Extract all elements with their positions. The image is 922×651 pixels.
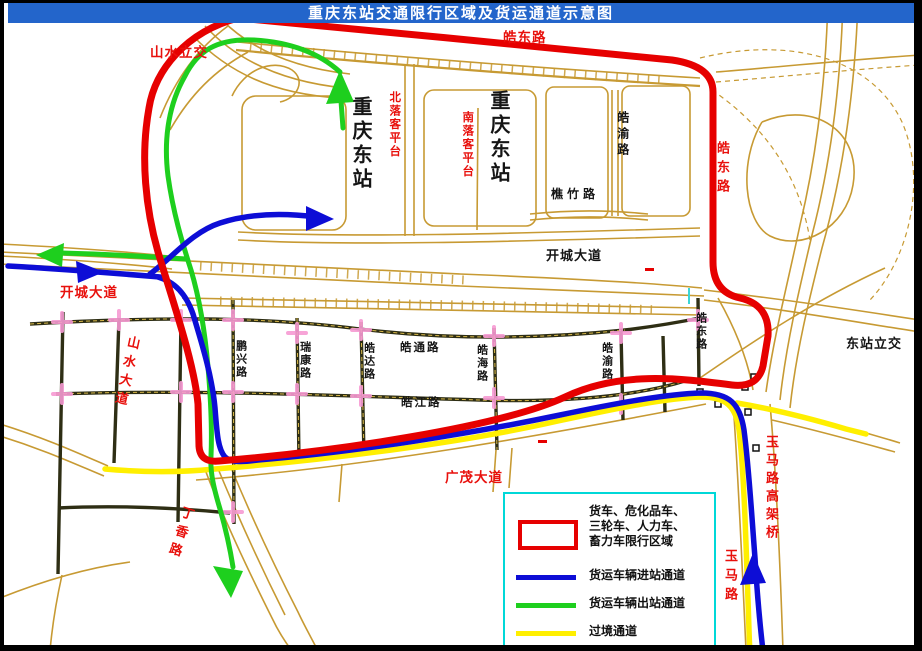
label-chongqing-east-station-2: 重庆东站 xyxy=(486,90,509,186)
legend-restricted-line2: 三轮车、人力车、 xyxy=(589,519,685,534)
label-haoda-road: 皓达路 xyxy=(362,342,375,381)
label-haodong-road-right: 皓东路 xyxy=(714,141,729,198)
legend-restricted-label: 货车、危化品车、 三轮车、人力车、 畜力车限行区域 xyxy=(589,504,685,549)
page-title: 重庆东站交通限行区域及货运通道示意图 xyxy=(308,2,614,23)
label-north-dropoff-platform: 北落客平台 xyxy=(387,91,400,159)
legend-restricted-line3: 畜力车限行区域 xyxy=(589,534,685,549)
label-dongzhan-interchange: 东站立交 xyxy=(846,337,902,352)
label-guangmao-avenue: 广茂大道 xyxy=(445,470,503,486)
frame-left xyxy=(0,0,4,651)
label-shanshui-interchange: 山水立交 xyxy=(150,45,208,61)
entry-arrow-station xyxy=(306,206,334,231)
label-yuma-road-viaduct: 玉马路高架桥 xyxy=(763,435,778,543)
label-kaicheng-avenue-center: 开城大道 xyxy=(546,249,602,264)
exit-arrow-south xyxy=(213,566,243,598)
label-south-dropoff-platform: 南落客平台 xyxy=(460,111,473,179)
legend: 货车、危化品车、 三轮车、人力车、 畜力车限行区域 货运车辆进站通道 货运车辆出… xyxy=(503,492,716,651)
legend-transit-swatch xyxy=(516,631,576,636)
label-kaicheng-avenue-west: 开城大道 xyxy=(60,285,118,301)
label-qiaozhu-road: 樵竹路 xyxy=(551,188,599,202)
label-chongqing-east-station-1: 重庆东站 xyxy=(348,96,371,192)
legend-entry-label: 货运车辆进站通道 xyxy=(589,568,685,583)
label-ruikang-road: 瑞康路 xyxy=(298,341,311,380)
legend-restricted-line1: 货车、危化品车、 xyxy=(589,504,685,519)
label-haohai-road: 皓海路 xyxy=(475,344,488,383)
title-bar: 重庆东站交通限行区域及货运通道示意图 xyxy=(8,2,914,23)
label-haodong-road-top: 皓东路 xyxy=(503,30,547,46)
label-haojiang-road: 皓江路 xyxy=(401,397,442,410)
legend-exit-label: 货运车辆出站通道 xyxy=(589,596,685,611)
label-haodong-road-grid: 皓东路 xyxy=(694,312,707,351)
traffic-restriction-map: 重庆东站交通限行区域及货运通道示意图 山水立交 皓东路 重庆东站 重庆东站 北落… xyxy=(0,0,922,651)
legend-restricted-swatch xyxy=(518,520,578,550)
frame-top xyxy=(0,0,922,3)
label-haoyu-road-upper: 皓渝路 xyxy=(615,111,629,159)
road-network xyxy=(0,0,920,651)
label-haotong-road: 皓通路 xyxy=(400,342,441,355)
label-haoyu-road-grid: 皓渝路 xyxy=(600,342,613,381)
frame-bottom xyxy=(0,645,922,651)
legend-exit-swatch xyxy=(516,603,576,608)
map-canvas xyxy=(0,0,922,651)
label-yuma-road: 玉马路 xyxy=(722,549,737,606)
legend-transit-label: 过境通道 xyxy=(589,624,637,639)
label-pengxing-road: 鹏兴路 xyxy=(234,340,247,379)
frame-right xyxy=(914,0,922,651)
entry-arrow-east xyxy=(76,261,104,283)
legend-entry-swatch xyxy=(516,575,576,580)
